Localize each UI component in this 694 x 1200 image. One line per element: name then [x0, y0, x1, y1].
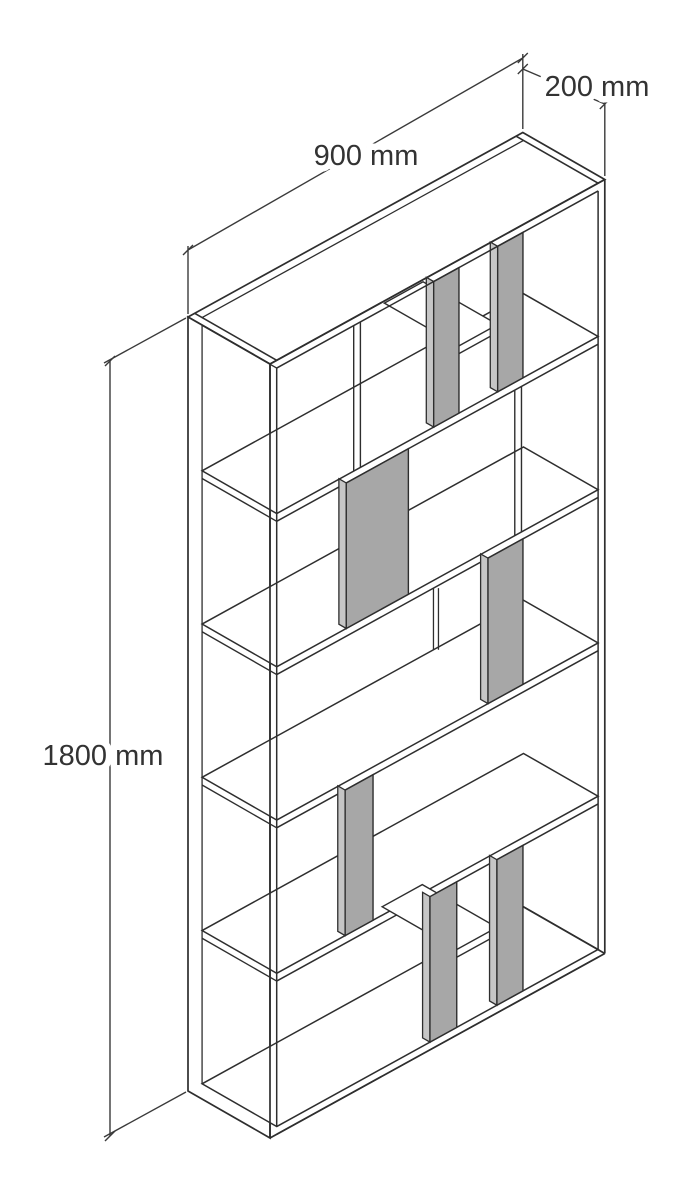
depth-dimension-label: 200 mm [545, 71, 650, 103]
dimension-diagram-page: 900 mm 200 mm 1800 mm [0, 0, 694, 1200]
height-dimension-label: 1800 mm [43, 740, 164, 772]
bookcase-isometric-diagram: 900 mm 200 mm 1800 mm [0, 0, 694, 1200]
width-dimension-label: 900 mm [314, 140, 419, 172]
bookcase-drawing [188, 133, 605, 1139]
